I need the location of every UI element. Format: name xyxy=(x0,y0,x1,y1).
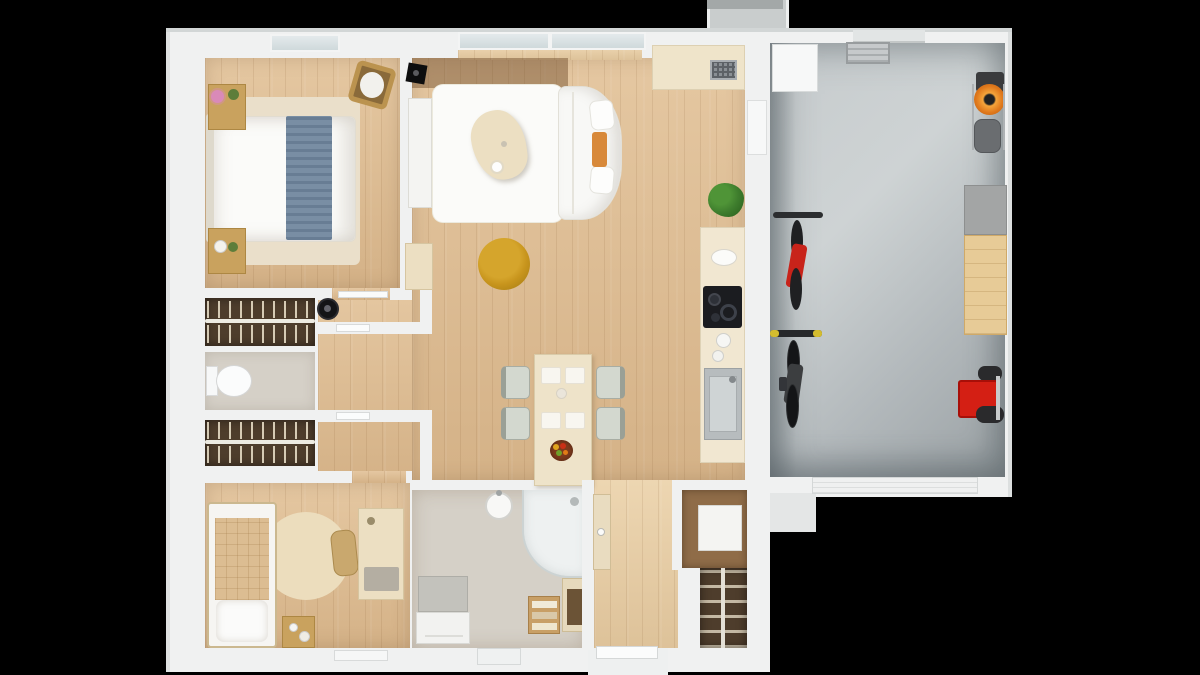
red-bike-handlebar xyxy=(773,212,823,218)
towel-shelf xyxy=(528,596,560,634)
sink-faucet xyxy=(729,376,736,383)
placemat xyxy=(565,367,585,384)
garage-connecting-door xyxy=(747,100,767,155)
garage-side-stoop xyxy=(770,493,816,532)
counter-grille-appliance xyxy=(710,60,737,80)
laundry-cabinet-recess xyxy=(567,589,582,625)
sink-basin xyxy=(709,376,737,432)
bedroom2-door-gap xyxy=(352,471,406,483)
placemat xyxy=(541,367,561,384)
top-porch-lip xyxy=(707,0,783,9)
corner-cabinet xyxy=(405,243,433,290)
toilet-bowl xyxy=(216,365,252,397)
hanger-row xyxy=(207,422,313,439)
pan-ring xyxy=(720,304,737,321)
closet-rail xyxy=(205,319,315,323)
kettle xyxy=(716,333,731,348)
dining-chair xyxy=(596,407,625,440)
vase-white xyxy=(214,240,227,253)
sofa-seam xyxy=(572,92,574,214)
single-bed-sheet xyxy=(216,600,268,642)
bathroom-exterior-door xyxy=(477,648,521,665)
washer-lid-line xyxy=(425,635,463,637)
sofa-pillow-top xyxy=(588,99,615,131)
garage-door-bottom xyxy=(812,477,978,494)
garage-white-cabinet xyxy=(772,44,818,92)
creeper-shelf xyxy=(846,42,890,64)
fruit xyxy=(556,450,562,456)
closet-bottom xyxy=(205,420,315,466)
bedroom2-door-leaf xyxy=(334,650,388,661)
pot-small xyxy=(711,313,720,322)
gray-vanity xyxy=(418,576,468,612)
closet-top xyxy=(205,298,315,346)
towel xyxy=(532,601,557,608)
cabinet-knob xyxy=(597,528,605,536)
entry-door xyxy=(596,646,658,659)
sofa-pillow-bottom xyxy=(589,165,615,195)
garage-gray-cabinet xyxy=(964,185,1007,235)
fruit xyxy=(563,450,568,455)
desk-chair xyxy=(330,529,360,577)
living-window xyxy=(458,32,646,50)
plant-small-bottom xyxy=(228,242,238,252)
lawn-mower-deck xyxy=(974,84,1005,115)
potted-plant xyxy=(708,183,744,217)
towel xyxy=(532,623,557,630)
bed-headboard xyxy=(206,114,214,242)
garage-workbench xyxy=(964,235,1007,335)
single-bed-blanket xyxy=(215,518,269,600)
washer xyxy=(416,612,470,644)
hanger-row xyxy=(207,446,313,463)
bedroom1-window xyxy=(270,34,340,52)
garage-wall-tool xyxy=(779,377,787,391)
bowl-white xyxy=(712,350,724,362)
table-centerpiece xyxy=(556,388,567,399)
black-bike-rear-wheel xyxy=(786,384,799,428)
nightstand-bottom xyxy=(208,228,246,274)
round-basin xyxy=(485,492,513,520)
wall-tv-dot xyxy=(413,70,419,76)
robot-vacuum-dot xyxy=(324,305,331,312)
red-bike-rear-wheel xyxy=(790,268,802,310)
hall-door-leaf-bottom xyxy=(336,412,370,420)
double-bed xyxy=(208,116,356,242)
bike-grip-yellow-left xyxy=(770,330,779,337)
floorplan-stage xyxy=(0,0,1200,675)
flower-pink xyxy=(211,90,224,103)
hall-door-leaf-top xyxy=(336,324,370,332)
armrest-tray-orange xyxy=(592,132,607,167)
hanger-row xyxy=(207,301,313,318)
hall-wall-stub-top xyxy=(315,322,432,334)
basin-faucet xyxy=(496,490,502,496)
cart-frame-bar xyxy=(996,376,1000,420)
living-wall-seg-bottom xyxy=(420,412,432,480)
plant-small-top xyxy=(228,89,239,100)
towel xyxy=(532,612,557,619)
blue-throw-blanket xyxy=(286,116,332,240)
tv-console xyxy=(408,98,432,208)
sofa-wall-dark-band xyxy=(412,58,568,88)
water-heater xyxy=(698,505,742,551)
shower-head xyxy=(570,497,579,506)
living-wall-seg-top xyxy=(420,290,432,334)
dining-chair xyxy=(596,366,625,399)
shoe-rack-divider xyxy=(721,568,725,648)
placemat xyxy=(565,412,585,429)
pot xyxy=(708,293,721,306)
bread-board xyxy=(711,249,737,266)
teapot xyxy=(299,631,310,642)
bedside-table xyxy=(282,616,315,648)
mower-handle-right xyxy=(1003,84,1005,150)
bedroom1-door-leaf xyxy=(338,291,388,298)
basket-cloth xyxy=(360,72,384,98)
yellow-pouf xyxy=(478,238,530,290)
placemat xyxy=(541,412,561,429)
dining-chair xyxy=(501,407,530,440)
mower-handle-left xyxy=(972,84,974,150)
closet-rail xyxy=(205,440,315,444)
fruit xyxy=(560,443,566,449)
dining-chair xyxy=(501,366,530,399)
utility-closet-shelving xyxy=(682,490,747,568)
kitchen-sink xyxy=(704,368,742,440)
table-flower xyxy=(492,162,502,172)
hanger-row xyxy=(207,325,313,343)
induction-cooktop xyxy=(703,286,742,328)
desk xyxy=(358,508,404,600)
lawn-mower-bag xyxy=(974,119,1001,153)
teacup xyxy=(289,623,298,632)
table-deco-dot xyxy=(501,141,507,147)
desk-lamp xyxy=(367,517,375,525)
desk-pad xyxy=(364,567,399,591)
hall-wall-stub-bottom xyxy=(315,410,432,422)
living-window-mullion xyxy=(548,32,552,48)
fruit-bowl xyxy=(550,440,573,461)
bike-grip-yellow-right xyxy=(813,330,822,337)
